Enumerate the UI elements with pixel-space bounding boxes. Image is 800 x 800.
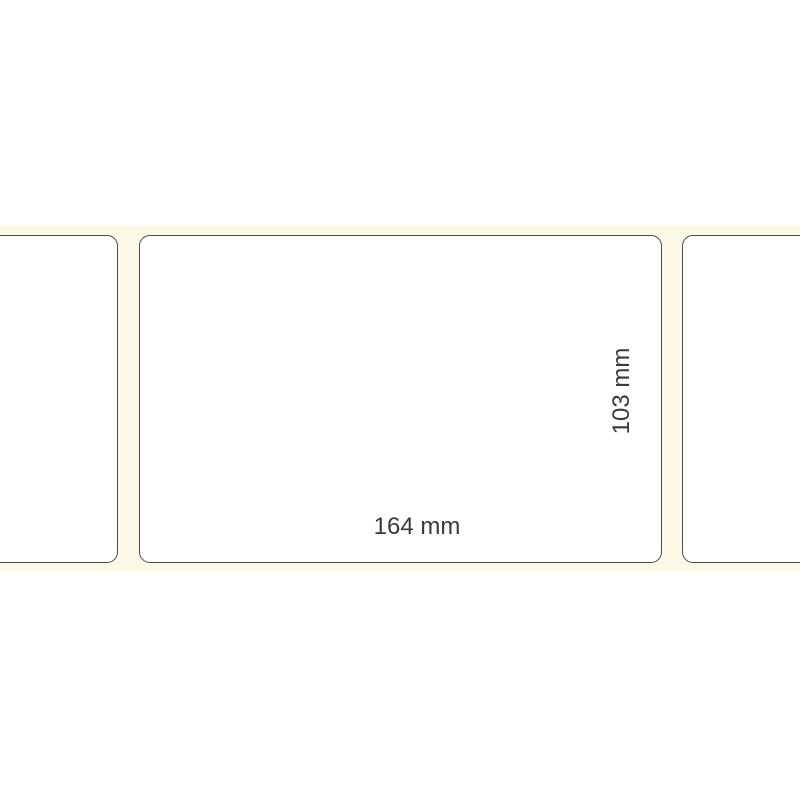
- height-dimension-label: 103 mm: [610, 348, 634, 435]
- label-right-partial: [682, 235, 800, 563]
- label-left-partial: [0, 235, 118, 563]
- label-roll-product-image: 164 mm 103 mm: [0, 0, 800, 800]
- width-dimension-label: 164 mm: [374, 515, 461, 539]
